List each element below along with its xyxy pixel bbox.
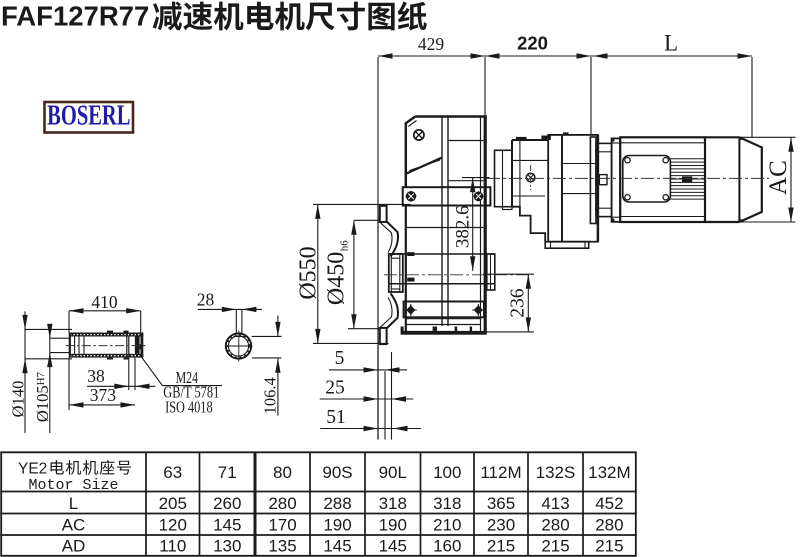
svg-text:132M: 132M bbox=[588, 463, 631, 482]
svg-text:120: 120 bbox=[159, 515, 187, 534]
svg-text:145: 145 bbox=[213, 515, 241, 534]
svg-text:FAF127R77: FAF127R77 bbox=[1, 1, 149, 32]
svg-text:230: 230 bbox=[487, 515, 515, 534]
svg-text:220: 220 bbox=[517, 32, 548, 53]
svg-text:90L: 90L bbox=[379, 463, 407, 482]
svg-text:373: 373 bbox=[90, 385, 117, 405]
svg-text:215: 215 bbox=[595, 536, 623, 555]
svg-text:L: L bbox=[69, 494, 78, 513]
svg-text:365: 365 bbox=[487, 494, 515, 513]
svg-text:413: 413 bbox=[541, 494, 569, 513]
svg-text:135: 135 bbox=[268, 536, 296, 555]
svg-text:90S: 90S bbox=[322, 463, 352, 482]
svg-text:Motor Size: Motor Size bbox=[28, 477, 118, 494]
svg-text:260: 260 bbox=[213, 494, 241, 513]
svg-text:AD: AD bbox=[62, 536, 86, 555]
svg-text:145: 145 bbox=[323, 536, 351, 555]
svg-text:280: 280 bbox=[268, 494, 296, 513]
svg-text:L: L bbox=[664, 31, 678, 56]
svg-text:28: 28 bbox=[197, 289, 215, 309]
svg-text:280: 280 bbox=[595, 515, 623, 534]
svg-text:38: 38 bbox=[87, 366, 105, 386]
svg-text:132S: 132S bbox=[536, 463, 576, 482]
svg-text:71: 71 bbox=[218, 463, 237, 482]
svg-text:280: 280 bbox=[541, 515, 569, 534]
svg-text:YE2: YE2 bbox=[18, 461, 47, 478]
svg-text:145: 145 bbox=[379, 536, 407, 555]
svg-text:BOSERL: BOSERL bbox=[47, 100, 130, 131]
svg-text:Ø450: Ø450 bbox=[324, 252, 350, 305]
svg-text:h6: h6 bbox=[339, 240, 351, 252]
svg-text:63: 63 bbox=[163, 463, 182, 482]
svg-text:Ø550: Ø550 bbox=[295, 246, 321, 299]
svg-text:215: 215 bbox=[541, 536, 569, 555]
svg-text:236: 236 bbox=[507, 288, 528, 318]
svg-text:190: 190 bbox=[323, 515, 351, 534]
svg-text:318: 318 bbox=[379, 494, 407, 513]
svg-text:429: 429 bbox=[418, 34, 445, 54]
svg-text:215: 215 bbox=[487, 536, 515, 555]
svg-text:100: 100 bbox=[433, 463, 461, 482]
svg-text:51: 51 bbox=[326, 407, 346, 428]
svg-text:205: 205 bbox=[159, 494, 187, 513]
svg-text:112M: 112M bbox=[480, 463, 521, 482]
svg-text:318: 318 bbox=[433, 494, 461, 513]
svg-text:AC: AC bbox=[765, 160, 792, 195]
svg-text:Ø105H7: Ø105H7 bbox=[33, 371, 52, 422]
svg-text:ISO 4018: ISO 4018 bbox=[165, 398, 213, 417]
svg-text:80: 80 bbox=[273, 463, 292, 482]
svg-text:452: 452 bbox=[595, 494, 623, 513]
svg-text:160: 160 bbox=[433, 536, 461, 555]
svg-text:288: 288 bbox=[323, 494, 351, 513]
svg-text:110: 110 bbox=[159, 536, 186, 555]
svg-text:410: 410 bbox=[91, 292, 118, 312]
svg-text:382.6: 382.6 bbox=[452, 205, 473, 248]
svg-text:210: 210 bbox=[433, 515, 461, 534]
svg-text:106.4: 106.4 bbox=[261, 377, 280, 414]
svg-text:5: 5 bbox=[335, 348, 345, 369]
svg-text:190: 190 bbox=[379, 515, 407, 534]
svg-text:AC: AC bbox=[62, 515, 86, 534]
svg-text:130: 130 bbox=[213, 536, 241, 555]
svg-text:Ø140: Ø140 bbox=[9, 381, 28, 418]
svg-text:170: 170 bbox=[268, 515, 296, 534]
svg-text:25: 25 bbox=[325, 377, 345, 398]
